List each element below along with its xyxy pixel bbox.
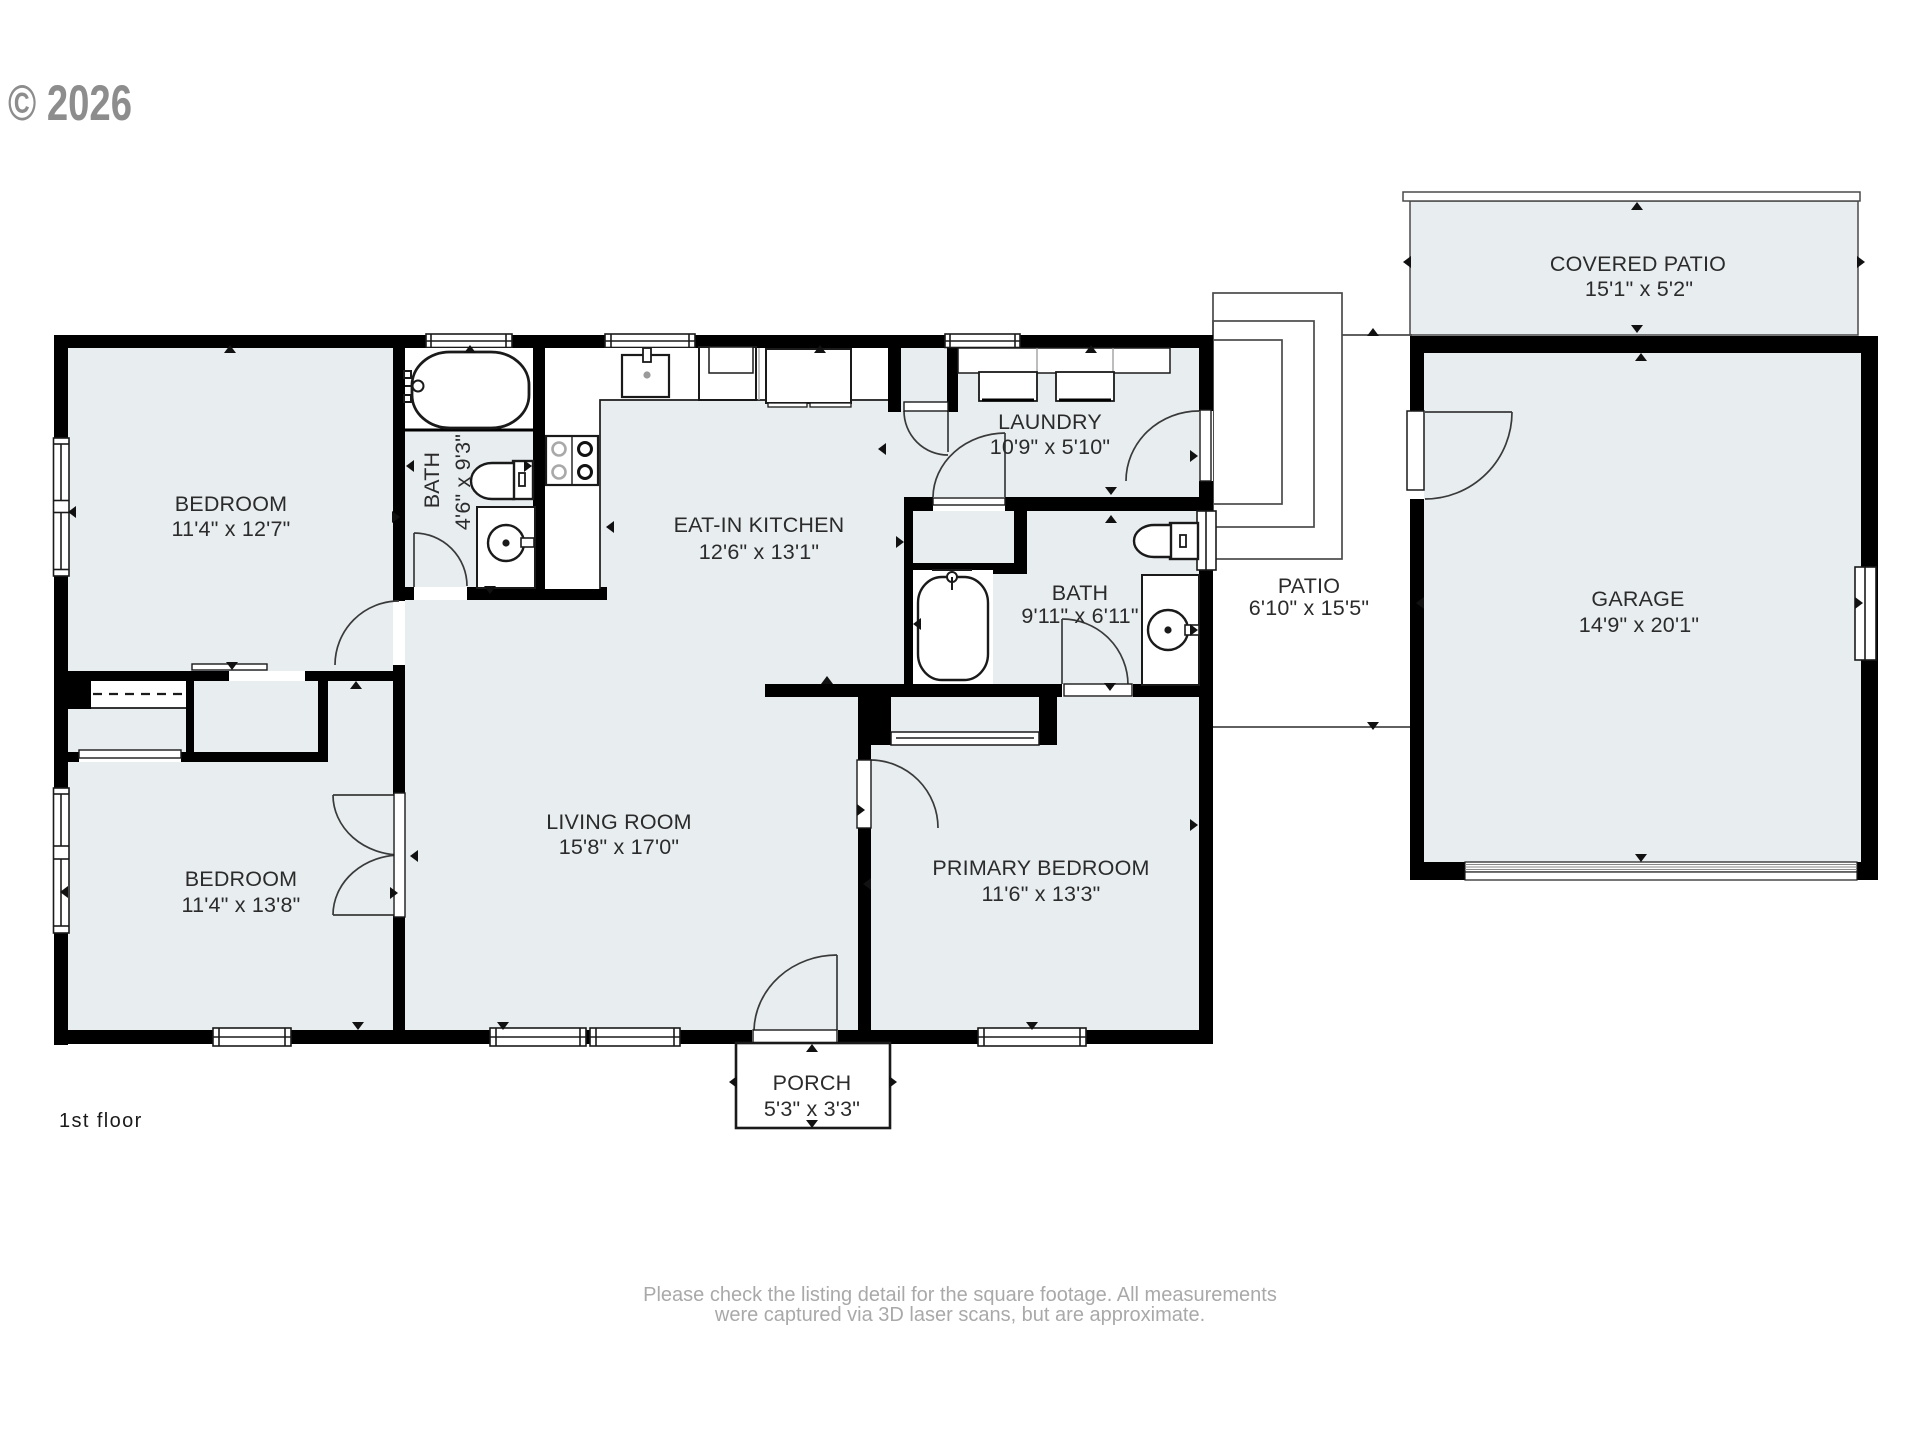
svg-text:15'8" x 17'0": 15'8" x 17'0" <box>559 835 680 859</box>
svg-text:10'9" x 5'10": 10'9" x 5'10" <box>990 435 1111 459</box>
svg-text:LIVING ROOM: LIVING ROOM <box>546 810 692 834</box>
svg-text:PATIO: PATIO <box>1278 574 1340 598</box>
svg-text:BATH: BATH <box>1052 581 1109 605</box>
svg-text:PORCH: PORCH <box>773 1071 852 1095</box>
svg-text:4'6" x 9'3": 4'6" x 9'3" <box>451 434 475 530</box>
svg-text:11'4" x 13'8": 11'4" x 13'8" <box>182 893 301 917</box>
svg-text:12'6" x 13'1": 12'6" x 13'1" <box>699 540 820 564</box>
svg-text:PRIMARY BEDROOM: PRIMARY BEDROOM <box>932 856 1149 880</box>
svg-text:5'3" x 3'3": 5'3" x 3'3" <box>764 1097 860 1121</box>
svg-text:15'1" x 5'2": 15'1" x 5'2" <box>1585 277 1693 301</box>
svg-text:11'6" x 13'3": 11'6" x 13'3" <box>982 882 1101 906</box>
svg-text:EAT-IN KITCHEN: EAT-IN KITCHEN <box>674 513 845 537</box>
svg-text:BEDROOM: BEDROOM <box>185 867 298 891</box>
svg-text:© 2026: © 2026 <box>8 75 132 131</box>
svg-text:were captured via 3D laser sca: were captured via 3D laser scans, but ar… <box>714 1304 1205 1326</box>
svg-text:6'10" x 15'5": 6'10" x 15'5" <box>1249 596 1370 620</box>
svg-text:14'9" x 20'1": 14'9" x 20'1" <box>1579 613 1700 637</box>
svg-text:GARAGE: GARAGE <box>1591 587 1684 611</box>
svg-text:LAUNDRY: LAUNDRY <box>998 410 1102 434</box>
svg-text:9'11" x 6'11": 9'11" x 6'11" <box>1021 604 1138 628</box>
svg-text:Please check the listing detai: Please check the listing detail for the … <box>643 1284 1277 1306</box>
svg-text:BEDROOM: BEDROOM <box>175 492 288 516</box>
svg-text:1st floor: 1st floor <box>59 1110 143 1132</box>
svg-text:COVERED PATIO: COVERED PATIO <box>1550 252 1726 276</box>
svg-text:BATH: BATH <box>420 452 444 509</box>
svg-text:11'4" x 12'7": 11'4" x 12'7" <box>172 517 291 541</box>
